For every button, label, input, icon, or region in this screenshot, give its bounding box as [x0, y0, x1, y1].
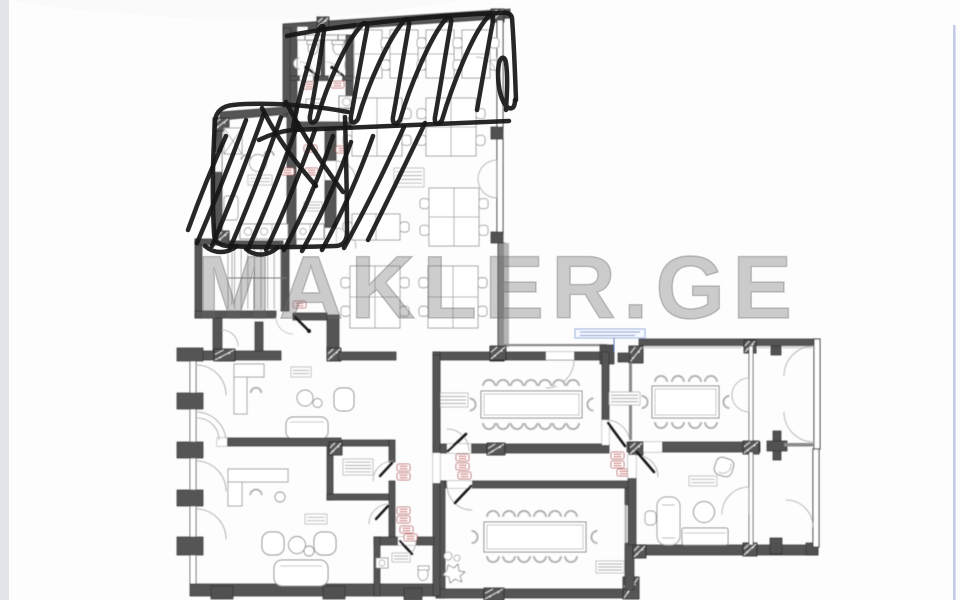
- svg-text:MAKLER.GE: MAKLER.GE: [197, 237, 799, 337]
